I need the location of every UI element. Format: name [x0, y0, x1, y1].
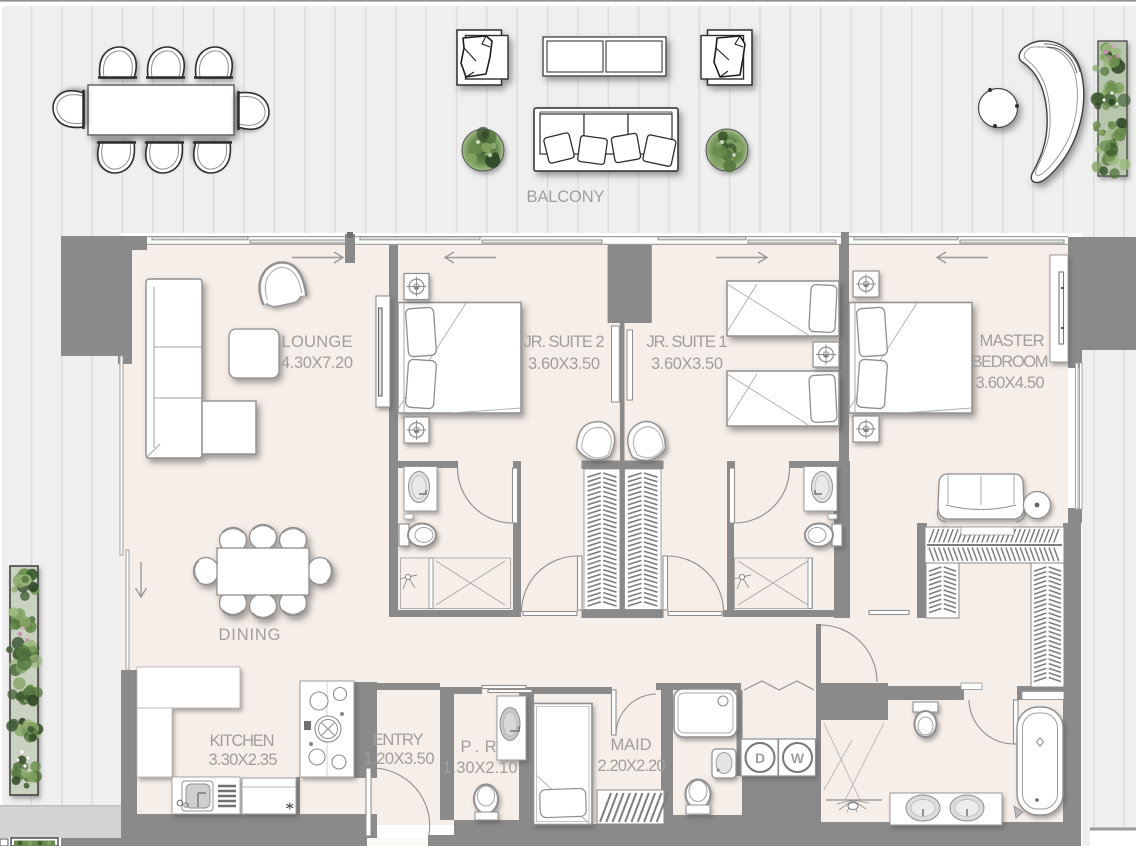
svg-text:JR. SUITE 1: JR. SUITE 1	[647, 333, 728, 351]
svg-text:D: D	[755, 750, 765, 766]
svg-text:BEDROOM: BEDROOM	[972, 353, 1049, 371]
svg-text:1.30X2.10: 1.30X2.10	[443, 759, 518, 777]
svg-text:MAID: MAID	[611, 736, 652, 754]
svg-text:JR. SUITE 2: JR. SUITE 2	[524, 333, 605, 351]
svg-text:DINING: DINING	[219, 626, 281, 644]
svg-text:1.20X3.50: 1.20X3.50	[364, 750, 435, 768]
svg-text:BALCONY: BALCONY	[527, 188, 605, 206]
svg-text:2.20X2.20: 2.20X2.20	[598, 757, 666, 775]
svg-text:4.30X7.20: 4.30X7.20	[281, 354, 353, 372]
svg-text:ENTRY: ENTRY	[373, 731, 424, 749]
svg-text:3.60X4.50: 3.60X4.50	[976, 374, 1045, 392]
svg-text:3.30X2.35: 3.30X2.35	[209, 751, 278, 769]
svg-text:3.60X3.50: 3.60X3.50	[651, 355, 723, 373]
svg-text:LOUNGE: LOUNGE	[282, 333, 353, 351]
svg-text:3.60X3.50: 3.60X3.50	[528, 355, 600, 373]
svg-text:W: W	[791, 750, 805, 766]
svg-text:P.R: P.R	[461, 738, 497, 756]
svg-text:KITCHEN: KITCHEN	[210, 732, 275, 750]
svg-text:MASTER: MASTER	[980, 332, 1045, 350]
